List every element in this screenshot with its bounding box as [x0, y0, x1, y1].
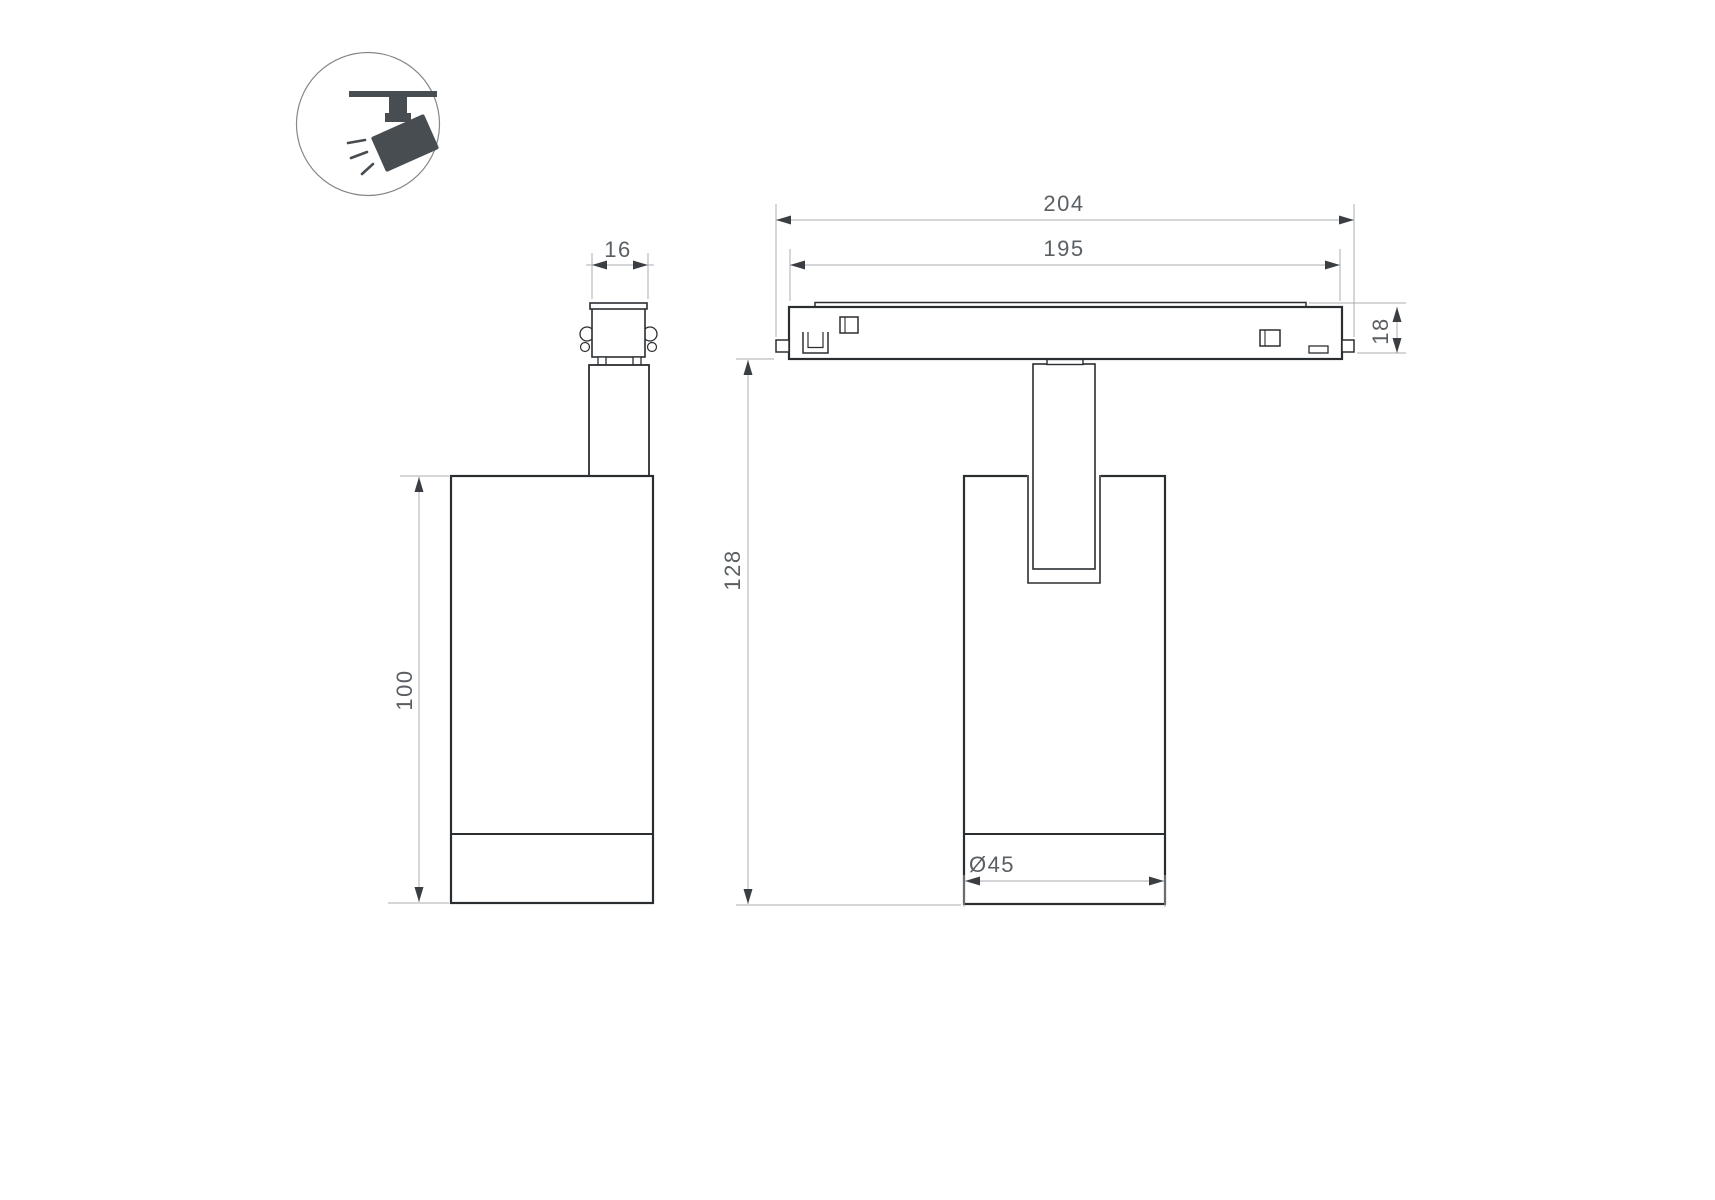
arrowhead — [790, 261, 805, 270]
side-track-adapter — [592, 308, 645, 357]
side-adapter-cap — [590, 303, 647, 309]
front-stem-cap — [1047, 360, 1083, 365]
adapter-side-knob — [581, 343, 590, 352]
dim-track-inner-width: 195 — [790, 236, 1340, 301]
adapter-foot — [598, 357, 606, 365]
dim-fixture-height-label: 128 — [720, 549, 745, 590]
track-rail-body — [789, 307, 1342, 359]
dim-body-height: 100 — [388, 476, 449, 903]
side-lamp-body — [451, 476, 653, 903]
dim-body-diameter-label: Ø45 — [969, 852, 1015, 877]
icon-track-bar — [349, 91, 437, 97]
arrowhead — [633, 261, 648, 270]
track-spotlight-icon — [297, 53, 440, 196]
dim-adapter-width: 16 — [586, 237, 654, 299]
track-end-tab-left — [776, 340, 789, 352]
arrowhead — [415, 477, 424, 492]
drawing-svg: 16 100 204 195 18 — [0, 0, 1715, 1200]
adapter-side-knob — [648, 343, 657, 352]
side-pivot-stem — [589, 365, 649, 476]
arrowhead — [415, 887, 424, 902]
dim-track-height-label: 18 — [1368, 317, 1393, 344]
dim-track-inner-width-label: 195 — [1043, 236, 1084, 261]
dim-adapter-width-label: 16 — [604, 237, 631, 262]
dim-fixture-height: 128 — [720, 359, 961, 905]
arrowhead — [1325, 261, 1340, 270]
front-view — [776, 303, 1354, 905]
arrowhead — [1339, 216, 1354, 225]
icon-stem-joint — [385, 113, 411, 122]
arrowhead — [744, 889, 753, 904]
arrowhead — [776, 216, 791, 225]
adapter-foot — [633, 357, 641, 365]
arrowhead — [1393, 338, 1402, 353]
arrowhead — [1393, 307, 1402, 322]
track-end-tab-right — [1342, 340, 1354, 352]
side-view — [451, 303, 657, 903]
front-pivot-stem — [1033, 364, 1095, 569]
dim-body-height-label: 100 — [392, 669, 417, 710]
arrowhead — [744, 360, 753, 375]
dim-track-overall-width-label: 204 — [1043, 191, 1084, 216]
dimension-drawing-canvas: 16 100 204 195 18 — [0, 0, 1715, 1200]
